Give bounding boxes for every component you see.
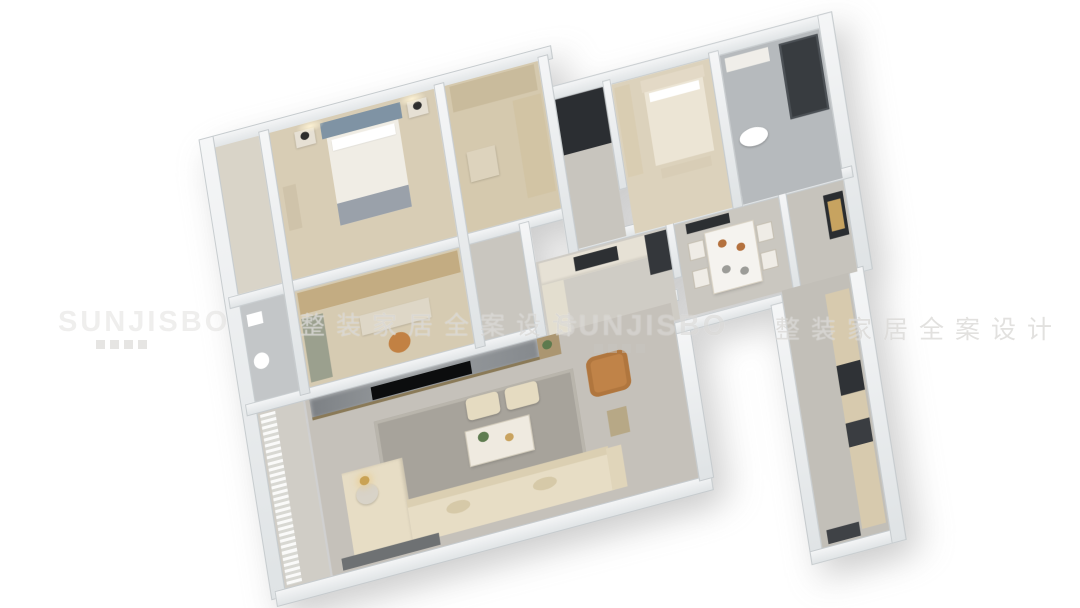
console-table bbox=[607, 406, 631, 437]
dining-table bbox=[705, 221, 762, 293]
pantry-oven bbox=[836, 360, 865, 396]
watermark-sub-mark bbox=[96, 340, 147, 349]
floorplan-render: SUNJISBO 整装家居全案设计 SUNJISBO 整装家居全案设计 bbox=[0, 0, 1080, 608]
apartment-3d-model bbox=[166, 0, 950, 608]
